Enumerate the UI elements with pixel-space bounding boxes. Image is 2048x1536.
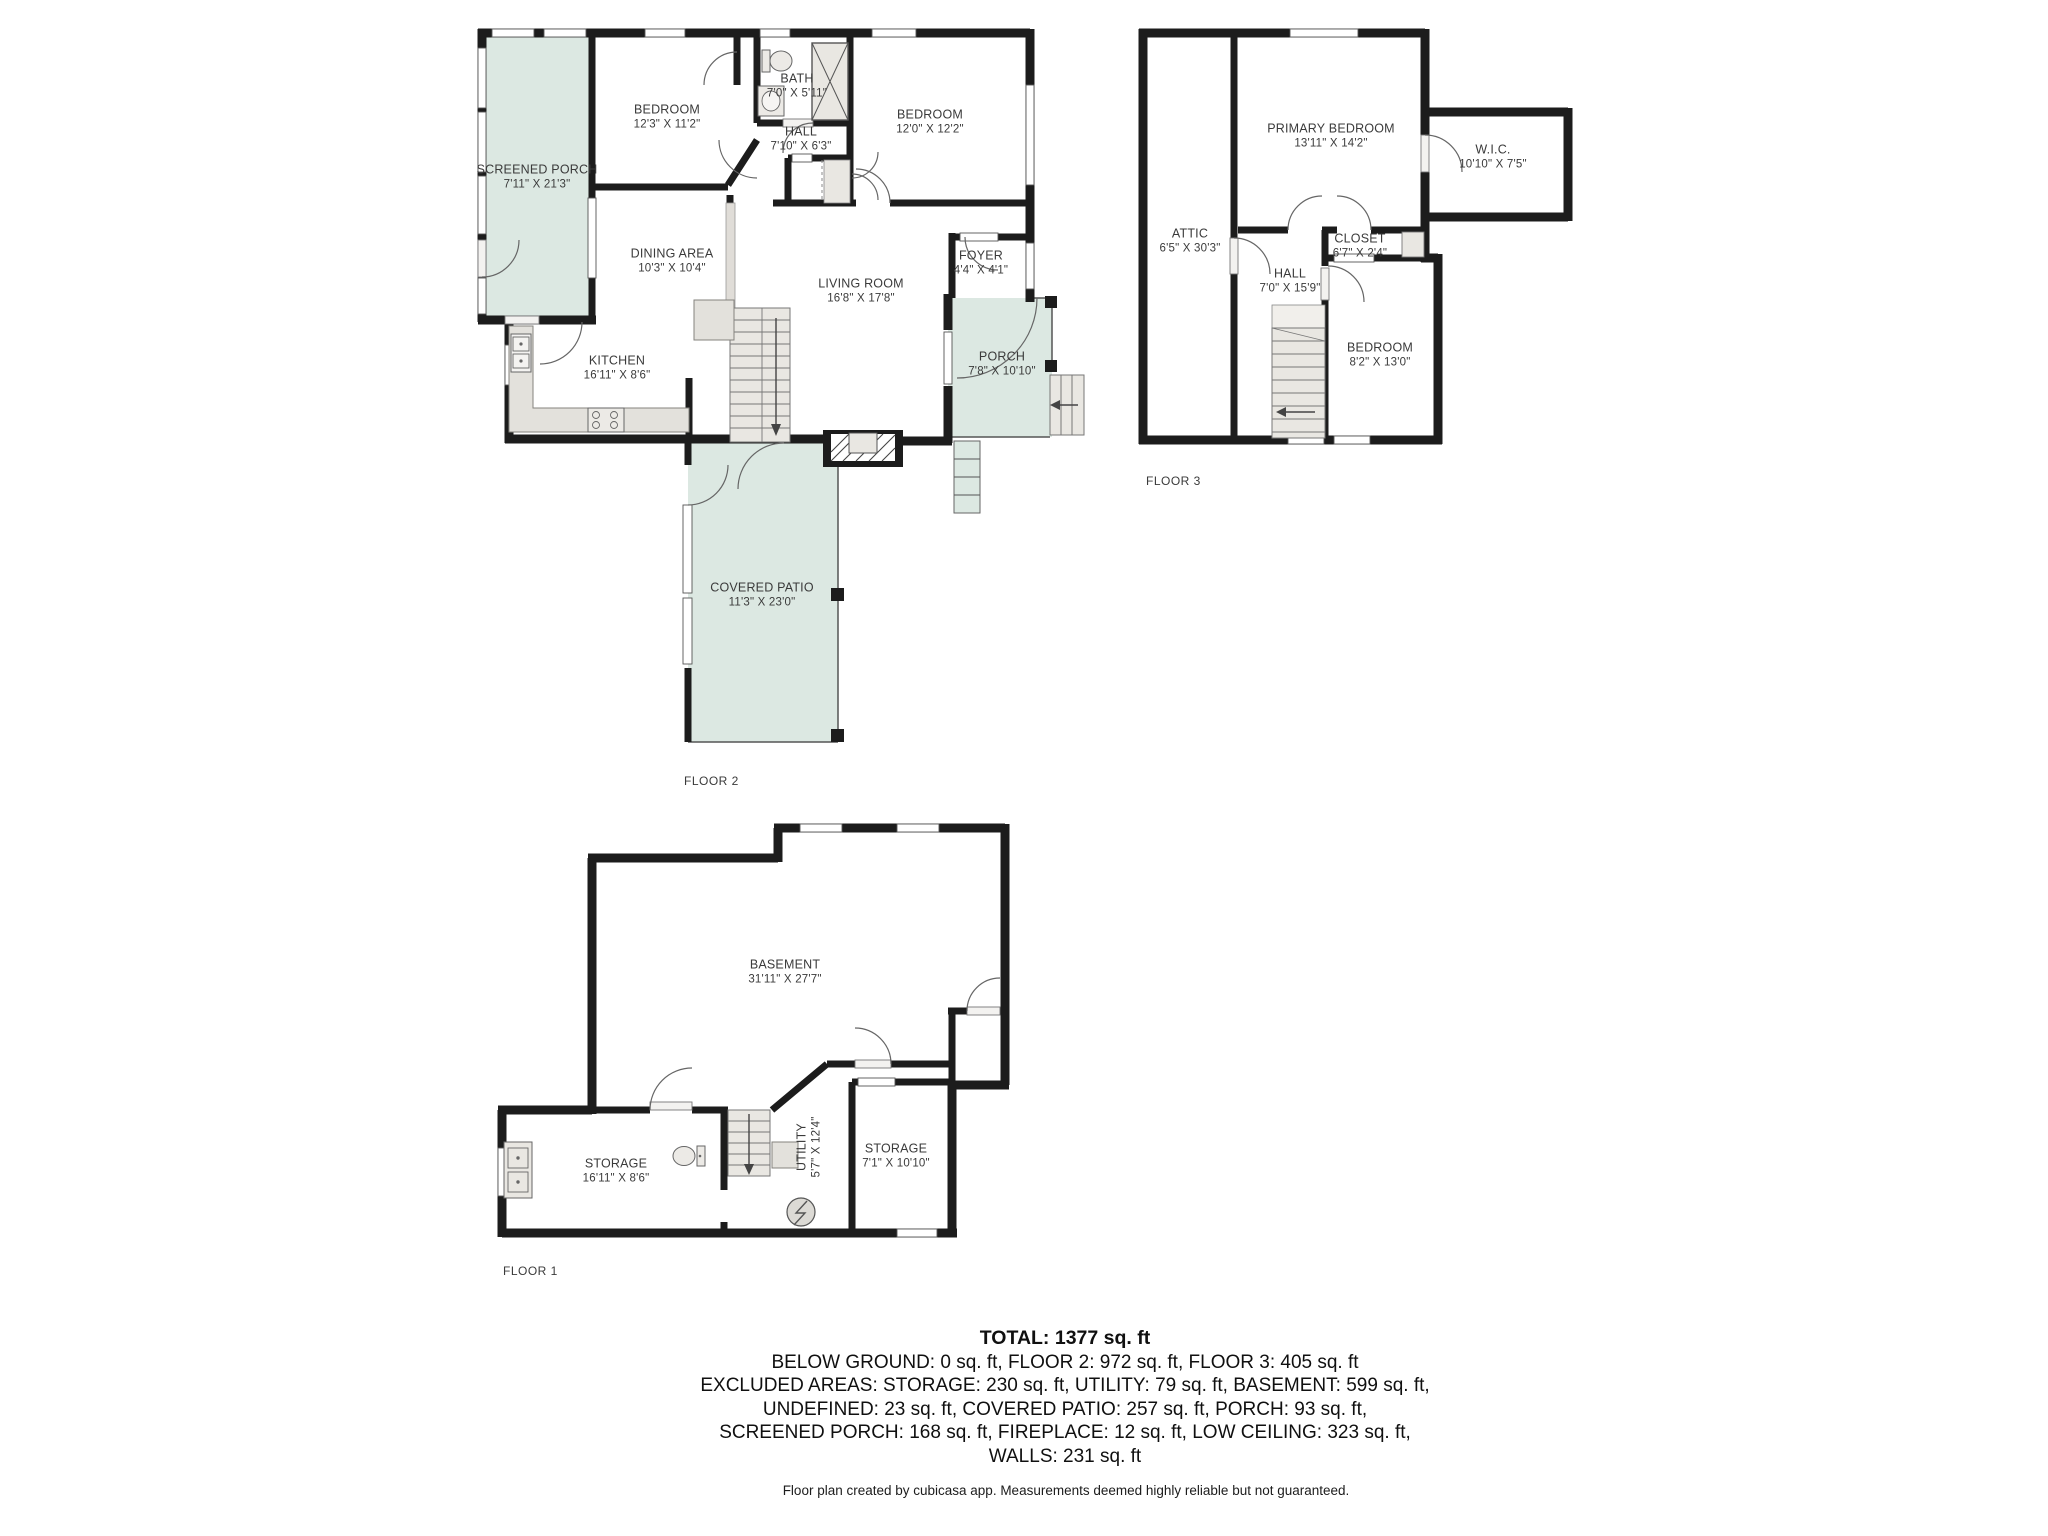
room-label-bath: BATH 7'0" X 5'11" (767, 71, 827, 102)
fireplace-icon (823, 430, 903, 467)
room-label-basement: BASEMENT 31'11" X 27'7" (748, 957, 821, 988)
floor1-windows (498, 824, 939, 1237)
toilet-icon (762, 50, 792, 72)
total-area: TOTAL: 1377 sq. ft (465, 1327, 1665, 1351)
room-label-primary-bedroom: PRIMARY BEDROOM 13'11" X 14'2" (1267, 121, 1395, 152)
room-label-attic: ATTIC 6'5" X 30'3" (1160, 226, 1221, 257)
summary-line: WALLS: 231 sq. ft (465, 1445, 1665, 1469)
stove-icon (588, 408, 624, 432)
floor2-stairs (694, 300, 790, 442)
room-label-bedroom-f3: BEDROOM 8'2" X 13'0" (1347, 340, 1413, 371)
basement-toilet-icon (673, 1146, 705, 1166)
summary-line: UNDEFINED: 23 sq. ft, COVERED PATIO: 257… (465, 1398, 1665, 1422)
floor3-caption: FLOOR 3 (1146, 474, 1201, 488)
floor1-plan (498, 824, 1009, 1237)
room-label-bedroom2: BEDROOM 12'0" X 12'2" (896, 107, 964, 138)
room-label-covered-patio: COVERED PATIO 11'3" X 23'0" (710, 580, 814, 611)
room-label-porch: PORCH 7'8" X 10'10" (968, 349, 1036, 380)
floorplan-page: SCREENED PORCH 7'11" X 21'3" BEDROOM 12'… (0, 0, 2048, 1536)
floor1-stairs (728, 1110, 798, 1176)
area-summary: TOTAL: 1377 sq. ft BELOW GROUND: 0 sq. f… (465, 1327, 1665, 1468)
room-label-hall-f2: HALL 7'10" X 6'3" (771, 124, 832, 155)
water-heater-icon (787, 1198, 815, 1226)
room-label-storage-right: STORAGE 7'1" X 10'10" (862, 1141, 930, 1172)
kitchen-sink-icon (511, 334, 531, 372)
floorplan-drawing (0, 0, 2048, 1536)
hall-closet (822, 160, 850, 203)
cased-opening (726, 203, 735, 313)
room-label-bedroom1: BEDROOM 12'3" X 11'2" (634, 102, 701, 133)
room-label-living-room: LIVING ROOM 16'8" X 17'8" (818, 276, 904, 307)
room-label-dining-area: DINING AREA 10'3" X 10'4" (631, 246, 714, 277)
summary-line: SCREENED PORCH: 168 sq. ft, FIREPLACE: 1… (465, 1421, 1665, 1445)
floor1-caption: FLOOR 1 (503, 1264, 558, 1278)
porch-steps (1050, 375, 1084, 435)
floor2-caption: FLOOR 2 (684, 774, 739, 788)
room-label-kitchen: KITCHEN 16'11" X 8'6" (584, 353, 651, 384)
room-label-screened-porch: SCREENED PORCH 7'11" X 21'3" (477, 162, 598, 193)
disclaimer: Floor plan created by cubicasa app. Meas… (466, 1483, 1666, 1498)
floor3-stairs (1272, 305, 1325, 438)
summary-line: BELOW GROUND: 0 sq. ft, FLOOR 2: 972 sq.… (465, 1351, 1665, 1375)
basement-sink-icon (504, 1142, 532, 1198)
room-label-utility: UTILITY 5'7" X 12'4" (794, 1117, 825, 1178)
room-label-foyer: FOYER 4'4" X 4'1" (954, 248, 1008, 279)
room-label-closet: CLOSET 6'7" X 2'4" (1333, 231, 1387, 262)
room-label-wic: W.I.C. 10'10" X 7'5" (1459, 142, 1527, 173)
closet-shelf (1402, 232, 1424, 257)
room-label-storage-left: STORAGE 16'11" X 8'6" (583, 1156, 650, 1187)
summary-line: EXCLUDED AREAS: STORAGE: 230 sq. ft, UTI… (465, 1374, 1665, 1398)
room-label-hall-f3: HALL 7'0" X 15'9" (1260, 266, 1321, 297)
